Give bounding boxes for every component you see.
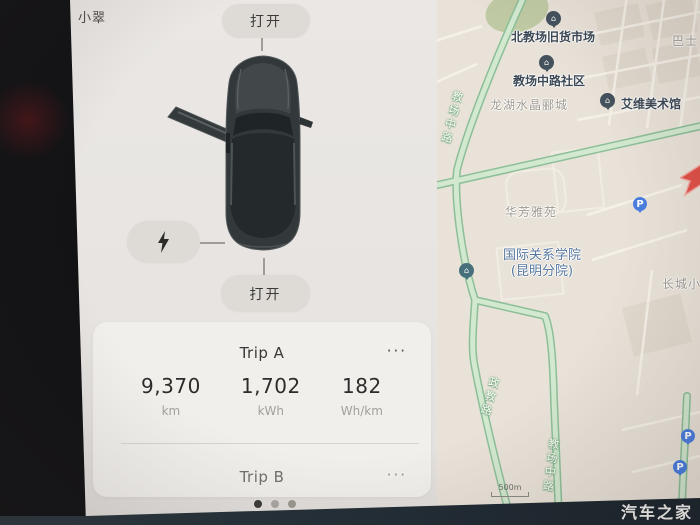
- trip-a-efficiency-value: 182: [341, 374, 383, 398]
- charge-connector-line: [200, 242, 225, 244]
- poi-label-museum[interactable]: 艾维美术馆: [621, 95, 681, 112]
- vehicle-name: 小翠: [78, 7, 106, 26]
- lightning-icon: [157, 231, 170, 253]
- watermark-text: 汽车之家: [621, 499, 693, 523]
- trip-b-header: Trip B ···: [93, 468, 431, 486]
- trip-a-menu-button[interactable]: ···: [387, 342, 407, 360]
- trip-a-title: Trip A: [240, 344, 285, 362]
- area-label-changcheng: 长城小: [662, 275, 700, 292]
- trip-a-efficiency: 182 Wh/km: [341, 374, 383, 418]
- school-poi-icon[interactable]: ⌂: [459, 263, 474, 278]
- trunk-connector-line: [263, 258, 265, 275]
- trip-a-distance-unit: km: [141, 404, 201, 418]
- area-label-bus: 巴士: [672, 32, 698, 49]
- trip-a-distance-value: 9,370: [141, 374, 201, 398]
- parking-icon-1[interactable]: P: [633, 197, 647, 211]
- map-panel[interactable]: 教场中路 政教路 教场中路 ⌂ 北教场旧货市场 ⌂ 教场中路社区 ⌂ 艾维美术馆…: [437, 0, 700, 518]
- page-dot-3[interactable]: [288, 500, 296, 508]
- area-label-longhu: 龙湖水晶郦城: [490, 96, 568, 113]
- poi-label-school[interactable]: 国际关系学院 (昆明分院): [503, 248, 581, 280]
- page-dot-1[interactable]: [254, 500, 262, 508]
- trip-a-energy: 1,702 kWh: [241, 374, 301, 418]
- school-label-line1: 国际关系学院: [503, 248, 581, 264]
- area-label-huafang: 华芳雅苑: [505, 203, 557, 220]
- frunk-open-label: 打开: [250, 11, 282, 31]
- trip-card: Trip A ··· 9,370 km 1,702 kWh 182 Wh/km: [93, 322, 431, 497]
- trip-divider: [121, 443, 419, 444]
- parking-icon-3[interactable]: P: [673, 460, 687, 474]
- page-dot-2[interactable]: [271, 500, 279, 508]
- poi-label-market[interactable]: 北教场旧货市场: [511, 28, 595, 45]
- bezel-reflection: [0, 80, 70, 160]
- page-indicator: [254, 500, 296, 508]
- market-poi-icon[interactable]: ⌂: [546, 11, 561, 26]
- trip-a-header: Trip A ···: [93, 344, 431, 362]
- map-scale: 500m: [491, 483, 529, 497]
- frunk-open-button[interactable]: 打开: [222, 4, 310, 38]
- trip-a-distance: 9,370 km: [141, 374, 201, 418]
- school-label-line2: (昆明分院): [503, 264, 581, 280]
- charge-port-button[interactable]: [127, 221, 200, 263]
- trip-a-energy-value: 1,702: [241, 374, 301, 398]
- map-scale-bar: [491, 492, 529, 497]
- parking-icon-2[interactable]: P: [681, 429, 695, 443]
- trip-a-stats: 9,370 km 1,702 kWh 182 Wh/km: [93, 374, 431, 418]
- community-poi-icon[interactable]: ⌂: [539, 55, 554, 70]
- trunk-open-button[interactable]: 打开: [221, 275, 310, 312]
- trip-a-efficiency-unit: Wh/km: [341, 404, 383, 418]
- trip-a-energy-unit: kWh: [241, 404, 301, 418]
- destination-arrow-icon: [680, 162, 700, 198]
- trip-b-title: Trip B: [240, 468, 285, 486]
- vehicle-status-panel: 小翠 打开: [68, 0, 437, 518]
- screen-photo: 小翠 打开: [0, 0, 700, 525]
- poi-label-community[interactable]: 教场中路社区: [513, 72, 585, 89]
- trunk-open-label: 打开: [250, 284, 282, 304]
- map-scale-label: 500m: [491, 483, 529, 492]
- trip-b-menu-button[interactable]: ···: [387, 466, 407, 484]
- museum-poi-icon[interactable]: ⌂: [600, 93, 615, 108]
